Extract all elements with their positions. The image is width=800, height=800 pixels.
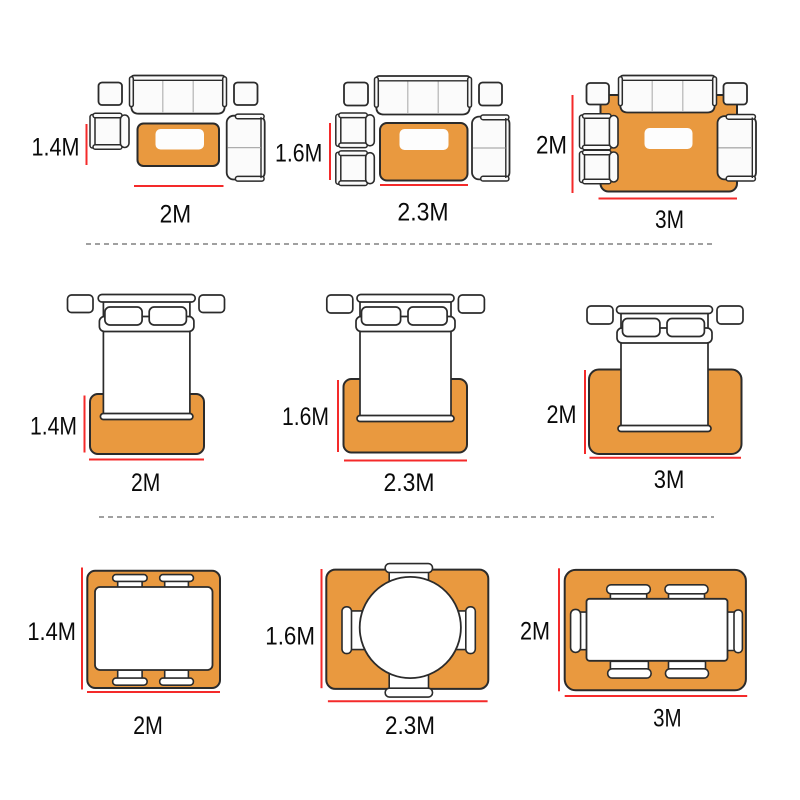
svg-text:2.3M: 2.3M	[397, 199, 448, 227]
svg-text:2M: 2M	[133, 712, 163, 740]
svg-text:2M: 2M	[547, 401, 577, 429]
svg-text:3M: 3M	[655, 206, 684, 234]
svg-text:1.4M: 1.4M	[30, 413, 77, 441]
svg-text:1.6M: 1.6M	[282, 403, 329, 431]
svg-text:2M: 2M	[520, 618, 550, 646]
svg-text:2M: 2M	[131, 469, 160, 497]
svg-text:3M: 3M	[654, 466, 685, 494]
svg-text:2.3M: 2.3M	[385, 712, 435, 740]
svg-text:2M: 2M	[536, 131, 567, 159]
svg-text:2.3M: 2.3M	[384, 469, 435, 497]
svg-text:1.4M: 1.4M	[27, 618, 76, 646]
svg-text:3M: 3M	[653, 704, 682, 732]
svg-text:1.4M: 1.4M	[32, 134, 80, 162]
svg-text:1.6M: 1.6M	[265, 623, 315, 651]
svg-text:2M: 2M	[160, 201, 192, 229]
svg-text:1.6M: 1.6M	[275, 139, 322, 167]
